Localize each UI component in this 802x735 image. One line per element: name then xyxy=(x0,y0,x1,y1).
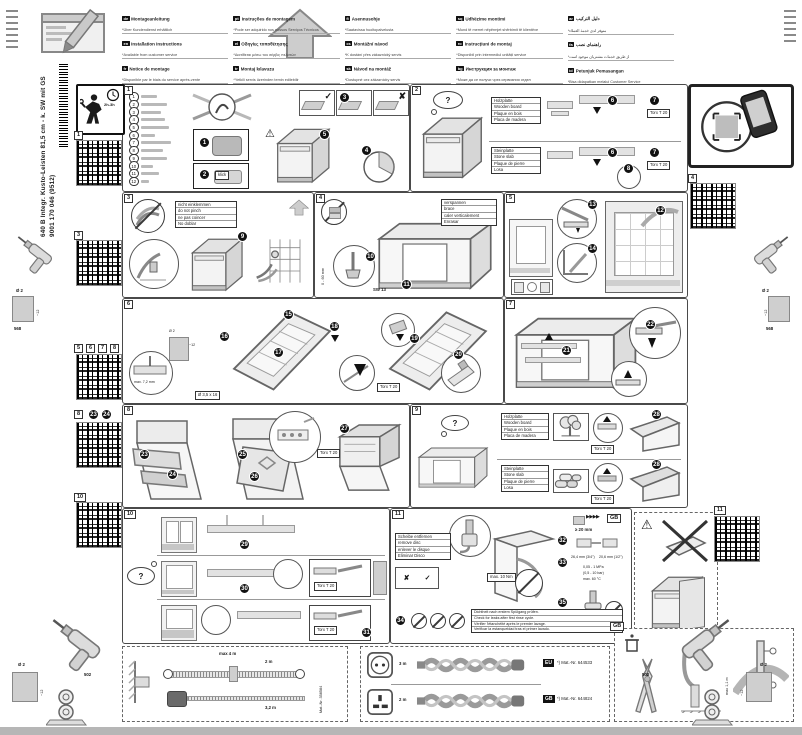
cabinet-niche-icon xyxy=(373,217,497,293)
torque-tag: max. 10 Nm xyxy=(487,573,516,582)
predrill-depth-label: ~12 xyxy=(764,310,768,316)
step-9: 9 xyxy=(237,231,248,242)
instruction-sheet-page: deMontageanleitung *Über Kundendienst er… xyxy=(0,0,802,735)
step-14: 14 xyxy=(587,243,598,254)
predrill-depth-label: ~12 xyxy=(36,310,40,316)
eu-socket-icon xyxy=(367,652,393,678)
panel-1-parts-overview: 1 1 2 3 4 5 6 7 8 9 10 11 12 1 2 k xyxy=(122,84,410,192)
language-title: Návod na montáž xyxy=(354,66,391,71)
step-12: 12 xyxy=(655,205,666,216)
height-range-label: 0 - 60 mm xyxy=(321,268,325,285)
language-note: *Dostupné cez zákaznícky servis xyxy=(345,78,451,82)
language-code-badge: sk xyxy=(345,66,352,71)
panel-5-protective-film: 5 13 14 12 xyxy=(504,192,688,298)
part-row: 5 xyxy=(129,124,187,132)
panel-7-side-strips: 7 21 22 xyxy=(504,298,688,404)
panel-5-tag: 5 xyxy=(506,194,515,203)
drill-icon xyxy=(744,234,796,290)
hose-length-2: 3,2 m xyxy=(265,705,276,710)
panel-2-tag: 2 xyxy=(412,86,421,95)
screw-row-magnifier xyxy=(269,411,321,463)
language-title: Инструкция за монтаж xyxy=(466,66,516,71)
wood-label-box: HolzplatteWooden board Plaque en boisPla… xyxy=(501,413,549,440)
step-3: 3 xyxy=(339,92,350,103)
step-22: 22 xyxy=(645,319,656,330)
strip-clip-magnifier xyxy=(611,361,647,397)
tree-icon-box xyxy=(553,413,589,441)
step-34: 34 xyxy=(395,615,406,626)
torx-label: Torx T 20 xyxy=(591,445,614,454)
cabinet-front xyxy=(509,219,553,277)
installation-time-box: 2h-3h xyxy=(76,84,125,135)
language-entry: ptInstruções de montagem *Pode ser adqui… xyxy=(233,10,339,34)
part-number: 12 xyxy=(129,177,139,187)
qr-code-step10 xyxy=(76,502,122,548)
panel-4-leveling: 4 verspannenbrace caler verticalementEnr… xyxy=(314,192,504,298)
panel-thickness-magnifier: max. 7,2 mm xyxy=(129,351,173,395)
language-note: *Може да се получи чрез сервизния отдел xyxy=(456,78,562,82)
wrench-size-label: SW 13 xyxy=(373,287,386,292)
warning-triangle-icon: ⚠ xyxy=(265,127,275,140)
language-column: deMontageanleitung *Über Kundendienst er… xyxy=(122,10,228,80)
language-title: Instrucțiuni de montaj xyxy=(465,41,512,46)
language-entry: frNotice de montage *Disponible par le b… xyxy=(122,60,228,84)
drill-height-502: 502 xyxy=(84,672,91,677)
language-code-badge: cs xyxy=(345,41,352,46)
check-icon: ✓ xyxy=(324,91,332,102)
depth-note: max. 7,2 mm xyxy=(134,380,155,384)
drill-depth-label: ~12 xyxy=(189,343,195,347)
barcode xyxy=(59,64,68,148)
language-title: Notice de montage xyxy=(129,66,169,71)
step-23: 23 xyxy=(139,449,150,460)
step-10: 10 xyxy=(365,251,376,262)
hose-extension-box: max 4 m 2 m 3,2 m Mat.-Nr. 358584 xyxy=(122,646,348,722)
predrill-depth-label: ~12 xyxy=(40,690,44,696)
predrill-diameter-label: Ø 2 xyxy=(760,662,767,667)
bracket-top-magnifier xyxy=(593,463,623,493)
scan-qr-box xyxy=(688,84,794,168)
panel-3-hose-routing: 3 nicht einklemmendo not pinch ne pas co… xyxy=(122,192,314,298)
part-row: 3 xyxy=(129,108,187,116)
aquastop-magnifier xyxy=(449,515,491,557)
cabinet-variant-1 xyxy=(161,517,197,553)
step-4: 4 xyxy=(361,145,372,156)
language-note: *Mund të merret nëpërmjet shërbimit të k… xyxy=(456,28,562,32)
panel-6-door-preparation: 6 max. 7,2 mm Ø 2 ~12 15 16 17 18 Ø 3,5 … xyxy=(122,298,504,404)
do-not-pinch-icon xyxy=(131,199,165,233)
fitting-size-12: 20,6 mm (1/2") xyxy=(599,555,623,559)
compare-wrong-box: ✘ xyxy=(373,90,409,116)
cord-length-gb: 2 m xyxy=(399,697,406,702)
language-title: Montageanleitung xyxy=(131,16,170,21)
language-note: *Disponible par le biais du service aprè… xyxy=(122,78,228,82)
part-shape xyxy=(141,103,167,106)
language-index: deMontageanleitung *Über Kundendienst er… xyxy=(122,10,674,80)
qr-step-badge-24: 24 xyxy=(101,409,112,420)
pressure-line-2: (0,5 - 10 bar) xyxy=(583,571,604,575)
question-cloud: ? xyxy=(127,567,155,585)
language-title: Asennusohje xyxy=(352,16,380,21)
part-row: 1 xyxy=(129,93,187,101)
gb-box-tag: GB xyxy=(610,622,624,631)
dispose-icon xyxy=(623,633,641,653)
language-code-badge: ro xyxy=(456,41,463,46)
part-row: 11 xyxy=(129,170,187,178)
qr-tag-1: 1 xyxy=(74,131,83,140)
language-note: *Über Kundendienst erhältlich xyxy=(122,28,228,32)
qr-code-step4 xyxy=(690,183,736,229)
step-11: 11 xyxy=(401,279,412,290)
qr-tag-8b: 8 xyxy=(74,410,83,419)
panel-8-door-mounting: 8 23 24 25 26 27 Torx T 20 xyxy=(122,404,410,508)
pliers-icon xyxy=(621,655,671,715)
step-27: 27 xyxy=(339,423,350,434)
torx-label: Torx T 20 xyxy=(647,109,670,118)
panel-8-tag: 8 xyxy=(124,406,133,415)
step-8: 8 xyxy=(623,163,634,174)
step-19: 19 xyxy=(409,333,420,344)
step-17: 17 xyxy=(273,347,284,358)
clearance-label: ≥ 20 mm xyxy=(575,527,592,532)
predrill-template xyxy=(768,296,790,322)
predrill-template xyxy=(746,672,772,702)
language-entry: deMontageanleitung *Über Kundendienst er… xyxy=(122,10,228,34)
wood-label-box: HolzplatteWooden board Plaque en boisPla… xyxy=(491,97,541,124)
qr-tag-3: 3 xyxy=(74,231,83,240)
step-28a: 28 xyxy=(651,409,662,420)
language-title: راهنمای نصب xyxy=(576,42,601,47)
language-title: Instruções de montagem xyxy=(242,16,295,21)
torx-drive-box: Torx T 20 xyxy=(309,559,371,597)
temperature-line: max. 60 °C xyxy=(583,577,601,581)
part-shape xyxy=(141,111,161,114)
no-kink-icon xyxy=(515,569,543,597)
coiled-cord-icon xyxy=(415,691,537,711)
step-24: 24 xyxy=(167,469,178,480)
phone-scan-qr-icon xyxy=(691,87,785,159)
parts-list: 1 2 3 4 5 6 7 8 9 10 11 12 xyxy=(129,93,187,185)
torx-label: Torx T 20 xyxy=(591,495,614,504)
language-note: *Yetkili servis üzerinden temin edilebil… xyxy=(233,78,339,82)
wall-connections-icon xyxy=(255,235,305,287)
step-26: 26 xyxy=(249,471,260,482)
do-not-step-icon xyxy=(659,517,711,565)
step-31: 31 xyxy=(361,627,372,638)
panel-9-countertop-fixing: 9 ? HolzplatteWooden board Plaque en boi… xyxy=(410,404,688,508)
screwdrivers-icon xyxy=(189,89,259,127)
language-entry: faراهنمای نصب *از طریق خدمات مشتریان موج… xyxy=(568,36,674,61)
step-6: 6 xyxy=(607,95,618,106)
qr-code-step8 xyxy=(76,422,122,468)
leak-icon-3 xyxy=(449,613,465,629)
language-title: دليل التركيب xyxy=(576,16,600,21)
part-shape xyxy=(141,149,163,152)
language-note: *K dostání přes zákaznický servis xyxy=(345,53,451,57)
part-row: 7 xyxy=(129,139,187,147)
language-entry: bgИнструкция за монтаж *Може да се получ… xyxy=(456,60,562,84)
language-column: arدليل التركيب *متوفر لدى خدمة العملاء f… xyxy=(568,10,674,80)
language-code-badge: ar xyxy=(568,16,575,21)
panel-9-tag: 9 xyxy=(412,406,421,415)
step-16: 16 xyxy=(219,331,230,342)
question-cloud: ? xyxy=(433,91,463,109)
gb-socket-icon xyxy=(367,689,393,715)
language-entry: arدليل التركيب *متوفر لدى خدمة العملاء xyxy=(568,10,674,35)
part-shape xyxy=(141,157,167,160)
language-code-badge: pt xyxy=(233,16,240,21)
warning-triangle-icon: ⚠ xyxy=(641,517,653,533)
hinge-plate-icon xyxy=(46,688,90,726)
hose-mat-number: Mat.-Nr. 358584 xyxy=(319,686,323,713)
part-shape xyxy=(141,172,159,175)
language-code-badge: fa xyxy=(568,42,575,47)
step-15: 15 xyxy=(283,309,294,320)
plug-type-badge-gb: GB xyxy=(543,695,555,703)
language-entry: idPetunjuk Pemasangan *Bisa didapatkan m… xyxy=(568,62,674,86)
register-product-pencil-icon xyxy=(34,8,118,62)
leak-check-note: Dichtheit nach erstem Spülgang prüfen.Ch… xyxy=(471,609,623,633)
stone-label-box: SteinplatteStone slab Plaque de pierreLo… xyxy=(501,465,549,492)
language-entry: skNávod na montáž *Dostupné cez zákazníc… xyxy=(345,60,451,84)
language-note: *Disponibil prin intermediul unității se… xyxy=(456,53,562,57)
panel-10-tag: 10 xyxy=(124,510,136,519)
language-column: sqUdhëzime montimi *Mund të merret nëpër… xyxy=(456,10,562,80)
cord-mat-number-gb: *) Mat.-Nr. 644824 xyxy=(557,696,592,701)
language-code-badge: fr xyxy=(122,66,128,71)
language-column: fiAsennusohje *Saatavissa huoltopalvelus… xyxy=(345,10,451,80)
power-cord-box: 3 m EU *) Mat.-Nr. 644533 2 m GB *) Mat.… xyxy=(360,646,610,722)
step-5: 5 xyxy=(319,129,330,140)
drill-icon xyxy=(668,616,740,694)
qr-tag-8: 8 xyxy=(110,344,119,353)
part-shape xyxy=(141,134,155,137)
predrill-template xyxy=(169,337,189,361)
step-25: 25 xyxy=(237,449,248,460)
qr-tag-5: 5 xyxy=(74,344,83,353)
step-18: 18 xyxy=(329,321,340,332)
part-shape xyxy=(141,165,153,168)
panel-1-tag: 1 xyxy=(124,86,133,95)
step-30: 30 xyxy=(239,583,250,594)
step-33: 33 xyxy=(557,557,568,568)
stone-label-box: SteinplatteStone slab Plaque de pierreLo… xyxy=(491,147,541,174)
qr-code-steps5-8 xyxy=(76,354,122,400)
tree-icon xyxy=(554,414,586,438)
part-row: 6 xyxy=(129,131,187,139)
qr-tag-7: 7 xyxy=(98,344,107,353)
qr-tag-11: 11 xyxy=(714,506,726,515)
model-designation: 640 B Integr. Kusto-Leisten 81,5 cm - k.… xyxy=(40,76,47,237)
step-20: 20 xyxy=(453,349,464,360)
predrill-diameter-label: Ø 2 xyxy=(16,288,23,293)
gb-marker-tag: GB xyxy=(607,514,621,523)
part-row: 9 xyxy=(129,155,187,163)
hose-max-length: max 4 m xyxy=(219,651,236,656)
torx-label: Torx T 20 xyxy=(647,161,670,170)
leak-icon-2 xyxy=(430,613,446,629)
stone-icon-box xyxy=(553,469,589,493)
language-code-badge: sq xyxy=(456,16,464,21)
plug-type-badge-eu: EU xyxy=(543,659,554,667)
gb-pointer-arrows: ▶▶▶▶ xyxy=(586,514,599,520)
wall-bracket-icon xyxy=(127,659,165,705)
part-row: 4 xyxy=(129,116,187,124)
torx-label: Torx T 20 xyxy=(314,626,337,635)
language-entry: elΟδηγίες τοποθέτησης *Διατίθεται μέσω τ… xyxy=(233,35,339,59)
language-column: ptInstruções de montagem *Pode ser adqui… xyxy=(233,10,339,80)
language-title: Οδηγίες τοποθέτησης xyxy=(241,41,287,46)
cabinet-variant-3 xyxy=(161,605,197,641)
predrill-template xyxy=(12,296,34,322)
hose-length-1: 2 m xyxy=(265,659,272,664)
language-note: *Available from customer service xyxy=(122,53,228,57)
drill-height-502: 502 xyxy=(642,672,649,677)
language-note: *متوفر لدى خدمة العملاء xyxy=(568,28,674,33)
language-entry: enInstallation instructions *Available f… xyxy=(122,35,228,59)
pinch-note-box: nicht einklemmendo not pinch ne pas coin… xyxy=(175,201,237,228)
edge-press-magnifier xyxy=(339,355,375,391)
bracket-top-magnifier xyxy=(593,413,623,443)
language-code-badge: el xyxy=(233,41,239,46)
drill-dia-label: Ø 2 xyxy=(169,329,175,333)
step-2: 2 xyxy=(199,169,210,180)
part-shape xyxy=(141,126,169,129)
remove-disc-box: Scheibe entfernenremove disc enlever le … xyxy=(395,533,451,560)
cabinet-run-icon xyxy=(417,437,489,497)
check-icon: ✓ xyxy=(425,574,431,582)
torx-label: Torx T 20 xyxy=(314,582,337,591)
drain-height-label: max 1,1 m xyxy=(725,677,729,695)
language-note: *Pode ser adquirido nos nossos Serviços … xyxy=(233,28,339,32)
clip-detail-magnifier xyxy=(273,559,303,589)
page-bottom-edge xyxy=(0,727,802,735)
step-21: 21 xyxy=(561,345,572,356)
document-number: 9001 170 046 (9512) xyxy=(49,175,56,237)
qr-tag-4: 4 xyxy=(688,174,697,183)
drill-height-label-left: 568 xyxy=(14,326,21,331)
clock-icon xyxy=(106,88,120,102)
step-6b: 6 xyxy=(607,147,618,158)
stones-icon xyxy=(554,470,586,490)
predrill-diameter-label: Ø 2 xyxy=(18,662,25,667)
part-row: 2 xyxy=(129,101,187,109)
door-flip-pictogram xyxy=(511,279,553,295)
qr-code-step3 xyxy=(76,240,122,286)
language-note: *از طریق خدمات مشتریان موجود است xyxy=(568,54,674,59)
language-note: *Saatavissa huoltopalvelusta xyxy=(345,28,451,32)
part-row: 8 xyxy=(129,147,187,155)
qr-code-step1 xyxy=(76,140,122,186)
qr-code-step11 xyxy=(714,516,760,562)
panel-10-plinth-variants: 10 ? 29 30 Torx T 20 xyxy=(122,508,390,644)
brace-note-box: verspannenbrace caler verticalementEnras… xyxy=(441,199,497,226)
predrill-diameter-label: Ø 2 xyxy=(762,288,769,293)
coiled-cord-icon xyxy=(415,655,537,675)
step-29: 29 xyxy=(239,539,250,550)
cord-mat-number-eu: *) Mat.-Nr. 644533 xyxy=(557,660,592,665)
hinge-corner-magnifier xyxy=(201,605,231,635)
panel-11-water-connection: 11 Scheibe entfernenremove disc enlever … xyxy=(390,508,632,644)
step-1: 1 xyxy=(199,137,210,148)
language-entry: fiAsennusohje *Saatavissa huoltopalvelus… xyxy=(345,10,451,34)
hinge-plate-icon xyxy=(692,688,736,726)
part-row: 10 xyxy=(129,162,187,170)
part-row: 12 xyxy=(129,178,187,186)
pressure-line-1: 0,05 - 1 MPa xyxy=(583,565,604,569)
panel-6-tag: 6 xyxy=(124,300,133,309)
hand-tighten-pictogram: ✘ ✓ xyxy=(395,567,439,589)
panel-3-tag: 3 xyxy=(124,194,133,203)
language-code-badge: en xyxy=(122,41,130,46)
part-shape xyxy=(141,180,149,183)
language-entry: sqUdhëzime montimi *Mund të merret nëpër… xyxy=(456,10,562,34)
language-note: *Διατίθεται μέσω του σέρβις πελατών xyxy=(233,53,339,57)
step-32: 32 xyxy=(557,535,568,546)
cross-icon: ✘ xyxy=(404,574,410,582)
qr-tag-10: 10 xyxy=(74,493,86,502)
language-code-badge: tr xyxy=(233,66,239,71)
door-with-film xyxy=(605,201,683,293)
qr-step-badge-23: 23 xyxy=(88,409,99,420)
drill-icon xyxy=(42,616,114,694)
cabinet-variant-2 xyxy=(161,561,197,597)
language-title: Petunjuk Pemasangan xyxy=(576,68,624,73)
cord-length-eu: 3 m xyxy=(399,661,406,666)
panel-11-tag: 11 xyxy=(392,510,404,519)
step-28b: 28 xyxy=(651,459,662,470)
panel-7-tag: 7 xyxy=(506,300,515,309)
language-code-badge: id xyxy=(568,68,575,73)
language-title: Montaj kılavuzu xyxy=(241,66,275,71)
drill-icon xyxy=(10,234,62,290)
language-title: Montážní návod xyxy=(354,41,388,46)
step-7: 7 xyxy=(649,95,660,106)
installer-icon xyxy=(80,90,108,128)
predrill-template xyxy=(12,672,38,702)
predrill-depth-label: ~12 xyxy=(740,690,744,696)
leak-icon-1 xyxy=(411,613,427,629)
fitting-icons xyxy=(573,535,625,551)
step-7b: 7 xyxy=(649,147,660,158)
drill-height-label-right: 568 xyxy=(766,326,773,331)
language-code-badge: fi xyxy=(345,16,350,21)
language-title: Udhëzime montimi xyxy=(465,16,505,21)
step-35: 35 xyxy=(557,597,568,608)
cross-icon: ✘ xyxy=(398,91,406,102)
torx-label: Torx T 20 xyxy=(317,449,340,458)
language-entry: csMontážní návod *K dostání přes zákazni… xyxy=(345,35,451,59)
screwdriver-press-magnifier xyxy=(629,307,681,359)
language-entry: roInstrucțiuni de montaj *Disponibil pri… xyxy=(456,35,562,59)
hose-clamp-magnifier xyxy=(129,239,179,289)
part-shape xyxy=(141,118,165,121)
qr-tag-6: 6 xyxy=(86,344,95,353)
question-cloud: ? xyxy=(441,415,469,431)
language-title: Installation instructions xyxy=(131,41,182,46)
dishwasher-iso-icon xyxy=(179,233,253,295)
language-code-badge: bg xyxy=(456,66,464,71)
language-entry: trMontaj kılavuzu *Yetkili servis üzerin… xyxy=(233,60,339,84)
torx-label: Torx T 20 xyxy=(377,383,400,392)
screw-size-tag: Ø 3,5 x 16 xyxy=(195,391,220,400)
compare-ok-box: ✓ xyxy=(299,90,335,116)
klick-label: klick xyxy=(215,171,229,180)
panel-2-worktop-check: 2 ? HolzplatteWooden board Plaque en boi… xyxy=(410,84,688,192)
language-code-badge: de xyxy=(122,16,130,21)
dishwasher-iso-icon xyxy=(415,107,487,187)
fitting-size-34: 26,4 mm (3/4") xyxy=(571,555,595,559)
